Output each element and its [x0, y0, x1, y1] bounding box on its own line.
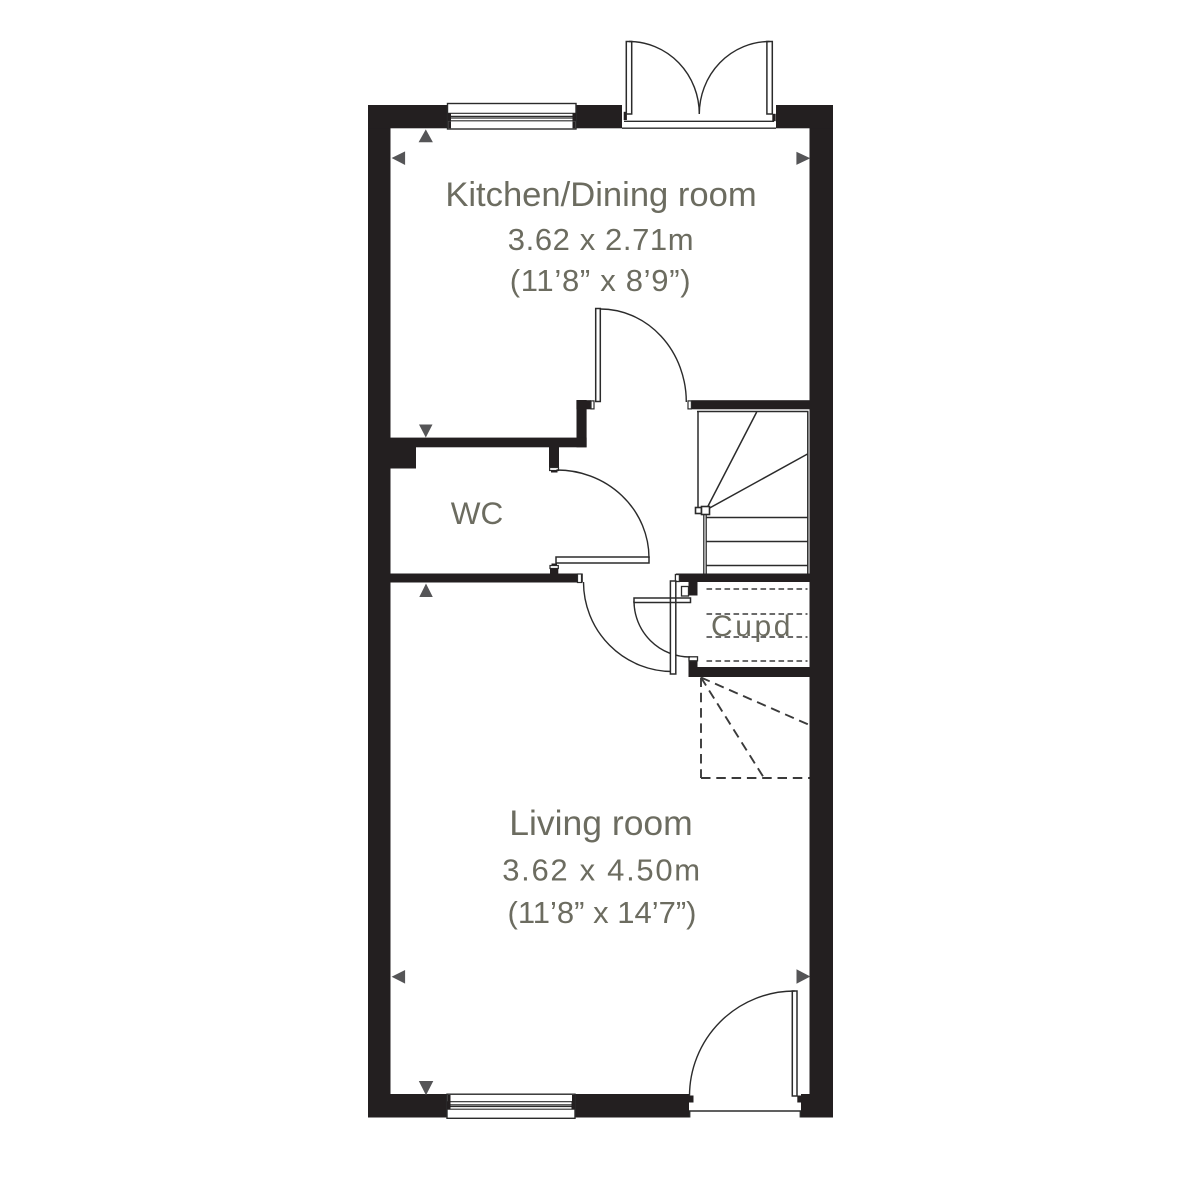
svg-text:(11’8” x 8’9”): (11’8” x 8’9”): [510, 263, 692, 298]
svg-text:Cupd: Cupd: [711, 610, 793, 643]
svg-text:(11’8” x 14’7”): (11’8” x 14’7”): [508, 895, 697, 930]
svg-text:Living room: Living room: [509, 803, 693, 843]
svg-text:3.62 x 2.71m: 3.62 x 2.71m: [508, 222, 694, 257]
svg-text:Kitchen/Dining room: Kitchen/Dining room: [445, 176, 756, 214]
svg-text:3.62 x 4.50m: 3.62 x 4.50m: [502, 853, 702, 888]
svg-text:WC: WC: [451, 495, 503, 531]
